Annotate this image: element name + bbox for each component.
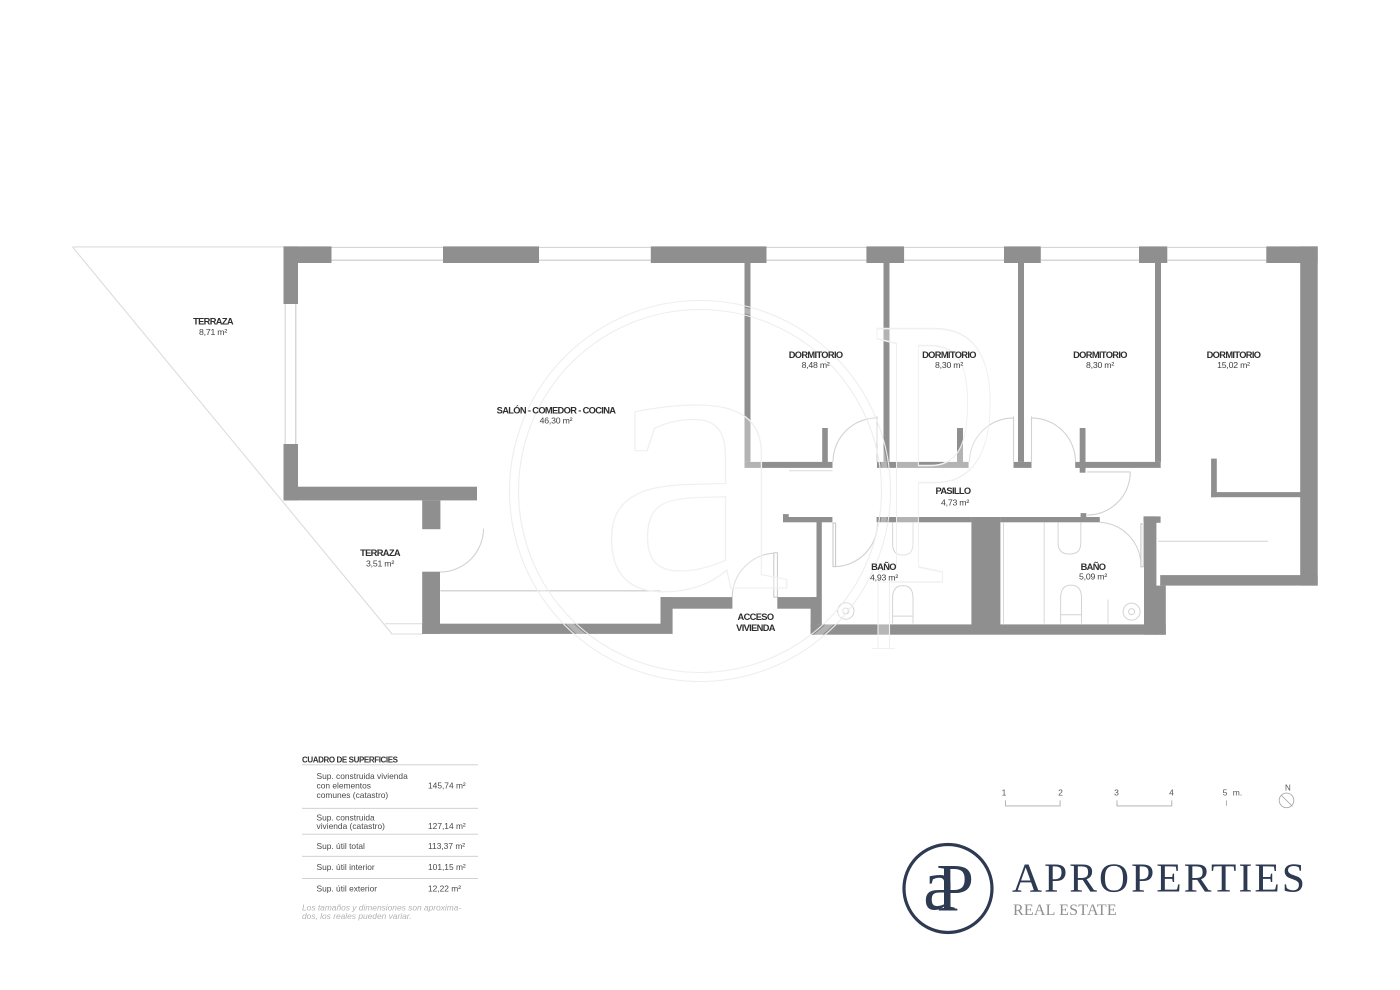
svg-text:P: P <box>936 851 974 926</box>
svg-text:Sup. útil exterior: Sup. útil exterior <box>317 883 378 893</box>
svg-text:2: 2 <box>1058 788 1063 798</box>
svg-text:8,30 m²: 8,30 m² <box>935 360 963 370</box>
svg-text:46,30 m²: 46,30 m² <box>540 415 573 425</box>
svg-text:4: 4 <box>1169 788 1174 798</box>
svg-text:BAÑO: BAÑO <box>1081 562 1106 572</box>
svg-text:4,73 m²: 4,73 m² <box>941 498 969 508</box>
svg-text:comunes (catastro): comunes (catastro) <box>317 790 389 800</box>
svg-text:145,74 m²: 145,74 m² <box>428 781 466 791</box>
svg-text:PASILLO: PASILLO <box>935 486 970 496</box>
svg-text:Sup. útil interior: Sup. útil interior <box>317 862 375 872</box>
svg-text:127,14 m²: 127,14 m² <box>428 821 466 831</box>
svg-text:4,93 m²: 4,93 m² <box>870 573 898 583</box>
svg-text:8,30 m²: 8,30 m² <box>1086 360 1114 370</box>
svg-text:8,48 m²: 8,48 m² <box>802 360 830 370</box>
svg-text:DORMITORIO: DORMITORIO <box>922 350 976 360</box>
svg-text:ACCESO: ACCESO <box>738 612 774 622</box>
svg-text:DORMITORIO: DORMITORIO <box>789 350 843 360</box>
svg-text:15,02 m²: 15,02 m² <box>1217 360 1250 370</box>
svg-text:DORMITORIO: DORMITORIO <box>1207 350 1261 360</box>
svg-text:N: N <box>1285 784 1291 793</box>
svg-text:m.: m. <box>1233 788 1242 798</box>
svg-text:TERRAZA: TERRAZA <box>360 548 401 558</box>
svg-text:SALÓN - COMEDOR - COCINA: SALÓN - COMEDOR - COCINA <box>497 404 617 415</box>
svg-text:101,15 m²: 101,15 m² <box>428 862 466 872</box>
svg-text:1: 1 <box>1002 788 1007 798</box>
svg-text:5: 5 <box>1223 788 1228 798</box>
svg-text:BAÑO: BAÑO <box>871 562 896 572</box>
svg-text:dos, los reales pueden variar.: dos, los reales pueden variar. <box>302 911 412 921</box>
svg-text:5,09 m²: 5,09 m² <box>1079 572 1107 582</box>
svg-text:VIVIENDA: VIVIENDA <box>736 623 776 633</box>
svg-text:CUADRO DE SUPERFICIES: CUADRO DE SUPERFICIES <box>302 756 399 765</box>
svg-text:Sup. útil total: Sup. útil total <box>317 841 366 851</box>
svg-text:a: a <box>596 241 793 672</box>
svg-text:3,51 m²: 3,51 m² <box>366 559 394 569</box>
svg-text:12,22 m²: 12,22 m² <box>428 883 461 893</box>
svg-text:TERRAZA: TERRAZA <box>193 316 234 326</box>
svg-text:APROPERTIES: APROPERTIES <box>1012 855 1307 901</box>
svg-text:3: 3 <box>1114 788 1119 798</box>
svg-text:REAL ESTATE: REAL ESTATE <box>1013 902 1117 919</box>
svg-text:Sup. construida vivienda: Sup. construida vivienda <box>317 771 409 781</box>
svg-text:113,37 m²: 113,37 m² <box>428 841 465 851</box>
svg-text:DORMITORIO: DORMITORIO <box>1073 350 1127 360</box>
svg-text:con elementos: con elementos <box>317 781 371 791</box>
svg-text:vivienda (catastro): vivienda (catastro) <box>317 821 386 831</box>
svg-text:8,71 m²: 8,71 m² <box>199 327 227 337</box>
